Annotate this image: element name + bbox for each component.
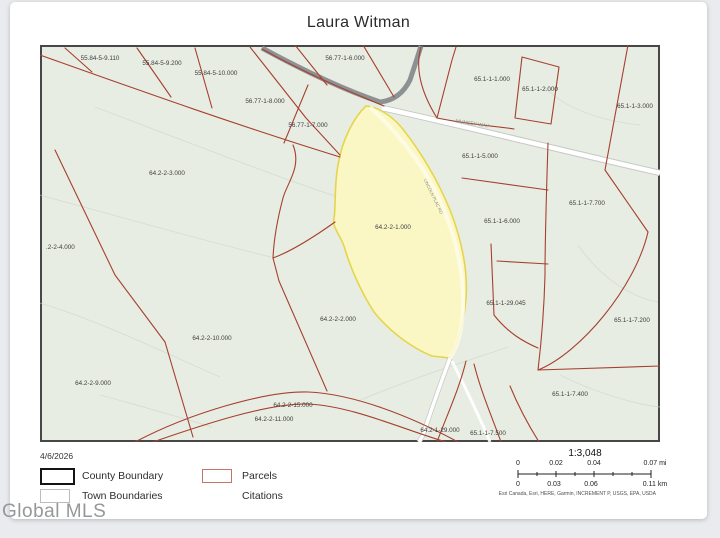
parcel-label: 65.1-1-6.000 <box>484 218 520 225</box>
scale-tick-label: 0.03 <box>547 481 561 488</box>
parcel-label: 64.2-2-9.000 <box>75 380 111 387</box>
parcel-label: 65.1-1-3.000 <box>617 103 653 110</box>
parcel-label: 64.2-2-11.000 <box>255 416 294 423</box>
scale-miles-labels: 00.020.040.07 mi <box>515 460 665 469</box>
parcel-label: 56.77-1-7.000 <box>288 122 328 129</box>
scale-ticks <box>515 469 665 479</box>
parcel-label: 64.2-2-1.000 <box>375 224 411 231</box>
parcel-label: 55.84-5-9.110 <box>81 55 120 62</box>
parcel-label: 65.1-1-7.200 <box>614 317 650 324</box>
parcel-label: 64.2-2-15.000 <box>273 402 313 409</box>
parcel-label: 65.1-1-5.000 <box>462 153 498 160</box>
parcels-swatch <box>202 469 232 483</box>
parcel-label: 65.1-1-7.700 <box>569 200 605 207</box>
map-legend: 4/6/2026 County Boundary Parcels Town Bo… <box>40 451 283 506</box>
document-page: Laura Witman <box>10 2 707 519</box>
parcel-label: 64.2-2-3.000 <box>149 170 185 177</box>
scale-tick-label: 0.11 km <box>643 481 667 488</box>
scale-tick-label: 0 <box>516 481 520 488</box>
watermark: Global MLS <box>2 501 106 523</box>
parcel-label: 64.2-2-2.000 <box>320 316 356 323</box>
scale-tick-label: 0.07 mi <box>644 460 667 467</box>
scale-tick-label: 0.02 <box>549 460 563 467</box>
scale-tick-label: 0.04 <box>587 460 601 467</box>
parcel-label: 64.2-2-10.000 <box>192 335 232 342</box>
legend-label-county-boundary: County Boundary <box>82 470 202 482</box>
map-date: 4/6/2026 <box>40 451 283 461</box>
parcel-label: 65.1-1-1.000 <box>474 76 510 83</box>
parcel-label: 64.2-1-29.000 <box>420 427 460 434</box>
scale-km-labels: 00.030.060.11 km <box>515 481 665 490</box>
legend-label-parcels: Parcels <box>242 470 283 482</box>
parcel-label: 65.1-1-2.000 <box>522 86 558 93</box>
parcel-label: 56.77-1-6.000 <box>325 55 365 62</box>
parcel-label: 55.84-5-9.200 <box>142 60 182 67</box>
page-title: Laura Witman <box>10 14 707 32</box>
parcel-label: 65.1-1-7.400 <box>552 391 588 398</box>
scale-tick-label: 0 <box>516 460 520 467</box>
scale-tick-label: 0.06 <box>584 481 598 488</box>
scale-ratio: 1:3,048 <box>515 448 655 459</box>
parcel-label: 55.84-5-10.000 <box>195 70 238 77</box>
parcel-label: .2-2-4.000 <box>46 244 75 251</box>
county-boundary-swatch <box>40 468 75 485</box>
scale-bar: 1:3,048 00.020.040.07 mi 00.030.060.11 k… <box>515 448 665 490</box>
parcel-map-canvas: 55.84-5-9.11055.84-5-9.20055.84-5-10.000… <box>40 45 660 442</box>
parcel-label: 56.77-1-8.000 <box>245 98 285 105</box>
screenshot-root: { "page": { "title": "Laura Witman", "wa… <box>0 0 720 538</box>
parcel-label: 65.1-1-29.045 <box>486 300 526 307</box>
map-attribution: Esri Canada, Esri, HERE, Garmin, INCREME… <box>488 491 656 497</box>
parcel-label: 65.1-1-7.500 <box>470 430 506 437</box>
legend-label-citations: Citations <box>242 490 283 502</box>
